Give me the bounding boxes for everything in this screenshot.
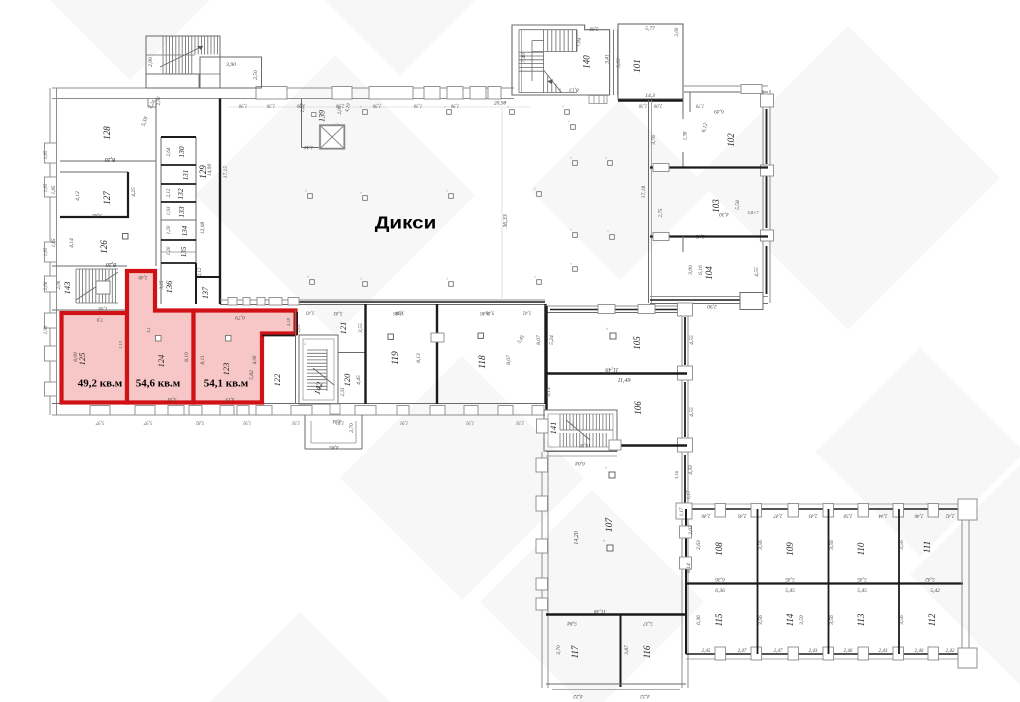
svg-text:1,91: 1,91	[336, 420, 344, 425]
svg-text:↓: ↓	[571, 422, 574, 427]
svg-text:×: ×	[570, 228, 572, 232]
svg-text:2,00: 2,00	[675, 27, 680, 36]
svg-text:2,46: 2,46	[914, 513, 923, 518]
svg-text:×: ×	[446, 277, 448, 281]
svg-text:1,30: 1,30	[413, 103, 422, 108]
svg-text:1,85: 1,85	[44, 183, 49, 192]
svg-text:2,00: 2,00	[653, 103, 662, 108]
svg-text:2,63: 2,63	[696, 540, 702, 550]
svg-text:5,45: 5,45	[785, 576, 795, 583]
svg-text:16,36: 16,36	[579, 442, 591, 447]
svg-text:5,45: 5,45	[857, 576, 867, 583]
svg-text:36,33: 36,33	[503, 214, 509, 229]
svg-text:3,87: 3,87	[624, 645, 630, 656]
svg-text:4,19: 4,19	[225, 396, 234, 401]
svg-text:×: ×	[360, 191, 362, 195]
svg-text:123: 123	[221, 363, 231, 376]
svg-text:2,42: 2,42	[945, 513, 954, 518]
svg-text:×: ×	[534, 275, 536, 279]
svg-text:14,20: 14,20	[573, 531, 580, 545]
svg-text:×: ×	[602, 538, 605, 543]
svg-text:2,47: 2,47	[773, 513, 782, 518]
svg-text:5,82: 5,82	[249, 370, 255, 380]
svg-text:1,85: 1,85	[44, 150, 49, 159]
svg-text:×: ×	[444, 105, 446, 109]
svg-text:2,33: 2,33	[341, 387, 346, 396]
svg-text:3,56: 3,56	[829, 540, 835, 551]
svg-text:17,15: 17,15	[223, 166, 229, 179]
svg-text:×: ×	[607, 230, 609, 234]
svg-text:2,44: 2,44	[878, 513, 887, 518]
svg-text:2,50: 2,50	[843, 513, 852, 518]
svg-text:2,43: 2,43	[879, 649, 888, 654]
svg-text:12,08: 12,08	[200, 222, 206, 235]
svg-text:1,17: 1,17	[680, 507, 685, 516]
svg-text:2,00: 2,00	[589, 26, 598, 31]
svg-text:3,41: 3,41	[603, 54, 610, 65]
svg-text:7,40: 7,40	[520, 53, 527, 63]
svg-text:×: ×	[605, 156, 607, 160]
svg-text:1,44: 1,44	[304, 144, 313, 149]
svg-text:122: 122	[272, 373, 282, 387]
svg-text:4,96: 4,96	[253, 355, 258, 364]
svg-text:×: ×	[534, 187, 536, 191]
svg-text:119: 119	[391, 351, 401, 365]
svg-text:1,93: 1,93	[167, 206, 172, 215]
svg-text:5,24: 5,24	[548, 335, 555, 345]
svg-text:5,77: 5,77	[645, 26, 655, 32]
svg-text:11,49: 11,49	[605, 366, 618, 373]
svg-text:5,42: 5,42	[925, 576, 935, 583]
svg-text:5,42: 5,42	[930, 587, 940, 594]
svg-text:6,16: 6,16	[698, 265, 704, 275]
svg-text:×: ×	[446, 189, 448, 193]
svg-text:101: 101	[632, 59, 642, 73]
svg-text:1,70: 1,70	[695, 103, 704, 108]
svg-text:137: 137	[201, 286, 210, 299]
svg-text:136: 136	[164, 280, 174, 294]
svg-text:2,40: 2,40	[701, 513, 710, 518]
svg-text:9,46: 9,46	[485, 310, 494, 315]
svg-text:3,56: 3,56	[899, 615, 905, 626]
svg-text:14,3: 14,3	[645, 92, 655, 99]
svg-text:×: ×	[604, 465, 607, 470]
svg-text:3,56: 3,56	[899, 540, 905, 551]
svg-text:5,45: 5,45	[785, 587, 795, 594]
svg-text:1,85: 1,85	[44, 247, 49, 256]
svg-text:1,91: 1,91	[243, 420, 251, 425]
svg-text:54,6 кв.м: 54,6 кв.м	[136, 378, 181, 390]
svg-text:1,91: 1,91	[516, 420, 524, 425]
svg-text:126: 126	[99, 240, 109, 254]
svg-text:1,30: 1,30	[266, 103, 275, 108]
svg-text:8,07: 8,07	[506, 355, 512, 365]
svg-text:120: 120	[342, 373, 352, 387]
svg-text:107: 107	[605, 517, 615, 533]
svg-text:6,04: 6,04	[575, 460, 585, 467]
svg-text:141: 141	[548, 422, 558, 435]
svg-text:1,30: 1,30	[638, 103, 647, 108]
svg-text:2,43: 2,43	[809, 649, 818, 654]
svg-text:3,99: 3,99	[616, 58, 622, 69]
svg-text:1,20: 1,20	[167, 246, 172, 255]
svg-text:5,43: 5,43	[305, 310, 314, 315]
svg-text:139: 139	[318, 110, 327, 122]
svg-text:8,20: 8,20	[105, 156, 116, 162]
svg-text:114: 114	[785, 613, 795, 626]
svg-text:4,30: 4,30	[719, 211, 729, 218]
svg-text:Дикси: Дикси	[375, 212, 437, 232]
svg-text:4,12: 4,12	[74, 191, 81, 201]
svg-text:3,56: 3,56	[758, 615, 764, 626]
svg-text:2,46: 2,46	[844, 649, 853, 654]
svg-text:1,91: 1,91	[400, 420, 408, 425]
svg-text:117: 117	[570, 645, 580, 658]
svg-text:2,90: 2,90	[148, 57, 154, 67]
svg-text:6,49: 6,49	[714, 108, 724, 115]
svg-text:8,14: 8,14	[685, 563, 692, 573]
svg-text:1,85: 1,85	[52, 185, 57, 194]
svg-text:8,13: 8,13	[569, 87, 579, 93]
svg-text:17,18: 17,18	[641, 186, 647, 199]
svg-text:108: 108	[714, 542, 724, 556]
svg-text:128: 128	[102, 126, 112, 140]
svg-text:8,11: 8,11	[200, 355, 206, 364]
svg-text:2,64: 2,64	[167, 147, 172, 156]
svg-text:124: 124	[156, 354, 166, 368]
svg-text:2,42: 2,42	[946, 649, 955, 654]
svg-text:4,55: 4,55	[753, 267, 760, 277]
svg-text:6,36: 6,36	[715, 588, 725, 594]
svg-text:5,82: 5,82	[195, 420, 204, 425]
svg-text:4,33: 4,33	[687, 465, 694, 475]
svg-text:54,1 кв.м: 54,1 кв.м	[204, 378, 249, 390]
svg-text:×: ×	[570, 262, 572, 266]
svg-text:2,12: 2,12	[198, 267, 203, 276]
svg-text:4,22: 4,22	[640, 693, 650, 700]
svg-text:6,36: 6,36	[696, 615, 702, 625]
svg-text:2,03: 2,03	[688, 525, 694, 535]
svg-text:3,96: 3,96	[395, 310, 404, 315]
svg-text:4,25: 4,25	[130, 187, 137, 197]
svg-text:3,25: 3,25	[160, 280, 165, 289]
svg-text:1,99: 1,99	[98, 305, 107, 310]
svg-text:14,99: 14,99	[206, 164, 213, 177]
svg-text:6,79: 6,79	[235, 314, 245, 320]
svg-text:1,17: 1,17	[687, 490, 692, 499]
svg-text:3,70: 3,70	[556, 645, 562, 656]
svg-text:×: ×	[360, 105, 362, 109]
svg-text:2,12: 2,12	[167, 188, 172, 197]
svg-text:3,82: 3,82	[92, 212, 103, 218]
svg-text:1,90: 1,90	[296, 103, 305, 108]
svg-text:8,10: 8,10	[184, 352, 190, 362]
svg-text:121: 121	[338, 322, 348, 335]
svg-text:5,37: 5,37	[643, 620, 653, 626]
svg-text:3,55: 3,55	[358, 323, 364, 334]
svg-text:2,40: 2,40	[138, 274, 147, 279]
svg-text:1,91: 1,91	[466, 420, 474, 425]
svg-text:2,46: 2,46	[915, 649, 924, 654]
svg-text:2,45: 2,45	[737, 513, 746, 518]
svg-text:1,20: 1,20	[167, 225, 172, 234]
svg-text:×: ×	[289, 401, 292, 406]
svg-text:×: ×	[307, 275, 309, 279]
svg-text:131: 131	[182, 170, 190, 181]
svg-text:2,30: 2,30	[335, 103, 344, 108]
svg-text:4,55: 4,55	[688, 407, 695, 417]
svg-text:11,49: 11,49	[617, 377, 630, 384]
svg-text:3,13: 3,13	[546, 387, 552, 398]
svg-text:2,06: 2,06	[44, 281, 49, 290]
svg-text:113: 113	[856, 613, 866, 626]
svg-text:102: 102	[726, 133, 736, 147]
svg-text:2,90: 2,90	[44, 325, 49, 334]
svg-text:4,55: 4,55	[688, 335, 695, 345]
svg-text:11,38: 11,38	[594, 608, 606, 614]
svg-text:115: 115	[714, 613, 724, 626]
svg-text:109: 109	[785, 542, 795, 556]
svg-text:1,90: 1,90	[372, 103, 381, 108]
svg-text:5,43: 5,43	[333, 310, 342, 315]
svg-text:3,76: 3,76	[651, 135, 657, 146]
svg-text:20,98: 20,98	[494, 101, 507, 107]
svg-text:140: 140	[582, 55, 592, 69]
svg-text:5,84: 5,84	[567, 620, 577, 627]
svg-text:2,45: 2,45	[702, 649, 711, 654]
svg-text:118: 118	[478, 355, 488, 369]
svg-text:8,20: 8,20	[106, 261, 117, 267]
svg-text:127: 127	[102, 191, 112, 205]
svg-text:143: 143	[62, 282, 72, 295]
svg-text:×: ×	[305, 189, 307, 193]
svg-text:5,97: 5,97	[95, 420, 104, 425]
svg-text:1,90: 1,90	[450, 103, 459, 108]
svg-text:×: ×	[507, 105, 509, 109]
svg-text:134: 134	[181, 225, 189, 236]
svg-text:112: 112	[927, 613, 937, 626]
svg-text:4,45: 4,45	[355, 375, 362, 385]
svg-text:1,90: 1,90	[238, 103, 247, 108]
svg-text:4,14: 4,14	[68, 238, 75, 248]
svg-text:3,90: 3,90	[225, 62, 236, 68]
svg-text:7,9: 7,9	[96, 316, 103, 321]
svg-text:2,70: 2,70	[349, 423, 355, 433]
svg-text:49,2 кв.м: 49,2 кв.м	[78, 378, 123, 390]
svg-text:103: 103	[711, 199, 721, 213]
svg-text:8,09: 8,09	[73, 352, 79, 362]
svg-text:8,13: 8,13	[416, 353, 422, 363]
svg-text:1,38: 1,38	[684, 131, 689, 140]
svg-text:105: 105	[632, 336, 642, 350]
svg-text:104: 104	[704, 266, 714, 280]
svg-text:5,97: 5,97	[143, 420, 152, 425]
svg-text:6,36: 6,36	[715, 576, 725, 582]
svg-text:5,45: 5,45	[857, 587, 867, 594]
svg-text:5,58: 5,58	[735, 200, 741, 210]
svg-text:2,90: 2,90	[157, 96, 162, 105]
svg-text:3,56: 3,56	[829, 615, 835, 626]
svg-text:1,85: 1,85	[52, 238, 57, 247]
svg-text:106: 106	[633, 401, 643, 415]
svg-text:4,85: 4,85	[329, 444, 339, 451]
svg-text:×: ×	[570, 156, 572, 160]
svg-text:×: ×	[568, 120, 570, 124]
svg-text:2,50: 2,50	[253, 70, 259, 80]
svg-text:5,42: 5,42	[522, 310, 531, 315]
svg-text:5,93: 5,93	[167, 396, 176, 401]
svg-text:111: 111	[922, 541, 932, 553]
svg-text:↓: ↓	[304, 342, 307, 347]
svg-text:8,07: 8,07	[536, 335, 542, 345]
svg-text:×: ×	[562, 105, 564, 109]
svg-text:133: 133	[177, 206, 186, 218]
svg-text:×: ×	[360, 277, 362, 281]
svg-text:130: 130	[177, 146, 186, 158]
svg-text:2,06: 2,06	[57, 280, 62, 289]
svg-text:4,22: 4,22	[573, 693, 583, 700]
svg-text:132: 132	[176, 188, 185, 200]
svg-text:3,90: 3,90	[688, 265, 694, 276]
svg-text:3,56: 3,56	[758, 540, 764, 551]
svg-text:2,47: 2,47	[774, 649, 783, 654]
svg-text:2,43: 2,43	[808, 513, 817, 518]
svg-text:116: 116	[642, 645, 652, 658]
svg-text:1,91: 1,91	[292, 420, 300, 425]
svg-text:×: ×	[605, 326, 608, 331]
svg-text:2,47: 2,47	[738, 649, 747, 654]
svg-text:3,59: 3,59	[799, 615, 805, 626]
svg-text:2,75: 2,75	[659, 208, 664, 217]
svg-text:110: 110	[856, 542, 866, 555]
